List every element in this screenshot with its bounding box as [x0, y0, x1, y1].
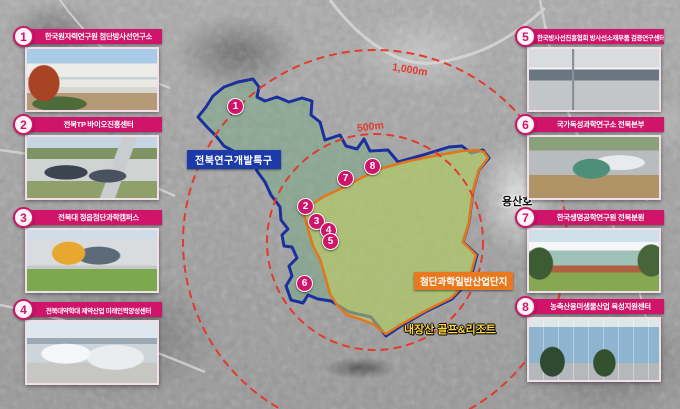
infographic-map-overview: 전북연구개발특구 첨단과학일반산업단지 1,000m 500m 용산호 내장산 … — [0, 0, 680, 409]
facility-title: 전북TP 바이오진흥센터 — [63, 119, 133, 130]
facility-photo — [527, 135, 661, 200]
map-marker-2: 2 — [297, 198, 314, 215]
map-marker-8: 8 — [364, 158, 381, 175]
resort-label: 내장산 골프&리조트 — [404, 321, 496, 337]
facility-title: 한국방사선진흥협회 방사선소재부품 검증연구센터 — [537, 32, 664, 42]
zone-blue-label: 전북연구개발특구 — [187, 150, 281, 169]
facility-number-badge: 6 — [515, 114, 536, 135]
facility-card-4: 4 전북대약학대 제약산업 미래인력양성센터 — [14, 301, 162, 385]
facility-card-6: 6 국가독성과학연구소 전북본부 — [516, 116, 664, 200]
facility-photo — [25, 228, 159, 293]
facility-card-5: 5 한국방사선진흥협회 방사선소재부품 검증연구센터 — [516, 28, 664, 112]
facility-photo — [527, 228, 661, 293]
facility-card-1: 1 한국원자력연구원 첨단방사선연구소 — [14, 28, 162, 112]
facility-number-badge: 8 — [515, 296, 536, 317]
facility-number-badge: 5 — [515, 26, 536, 47]
map-marker-5: 5 — [322, 233, 339, 250]
facility-photo — [25, 47, 159, 112]
facility-photo — [527, 47, 661, 112]
facility-number-badge: 1 — [13, 26, 34, 47]
map-marker-1: 1 — [227, 98, 244, 115]
facility-photo — [25, 135, 159, 200]
facility-number-badge: 3 — [13, 207, 34, 228]
facility-card-3: 3 전북대 정읍첨단과학캠퍼스 — [14, 209, 162, 293]
map-marker-6: 6 — [296, 275, 313, 292]
facility-title: 농축산용미생물산업 육성지원센터 — [550, 301, 651, 312]
facility-card-7: 7 한국생명공학연구원 전북분원 — [516, 209, 664, 293]
facility-number-badge: 2 — [13, 114, 34, 135]
facility-title: 한국생명공학연구원 전북분원 — [557, 212, 645, 223]
facility-photo — [25, 320, 159, 385]
facility-title: 한국원자력연구원 첨단방사선연구소 — [45, 31, 152, 42]
facility-card-2: 2 전북TP 바이오진흥센터 — [14, 116, 162, 200]
facility-title: 전북대 정읍첨단과학캠퍼스 — [58, 212, 139, 223]
facility-photo — [527, 317, 661, 382]
facility-title: 전북대약학대 제약산업 미래인력양성센터 — [46, 305, 151, 315]
facility-title: 국가독성과학연구소 전북본부 — [557, 119, 645, 130]
facility-number-badge: 7 — [515, 207, 536, 228]
map-marker-7: 7 — [337, 170, 354, 187]
facility-card-8: 8 농축산용미생물산업 육성지원센터 — [516, 298, 664, 382]
facility-number-badge: 4 — [13, 299, 34, 320]
zone-orange-label: 첨단과학일반산업단지 — [414, 272, 513, 290]
